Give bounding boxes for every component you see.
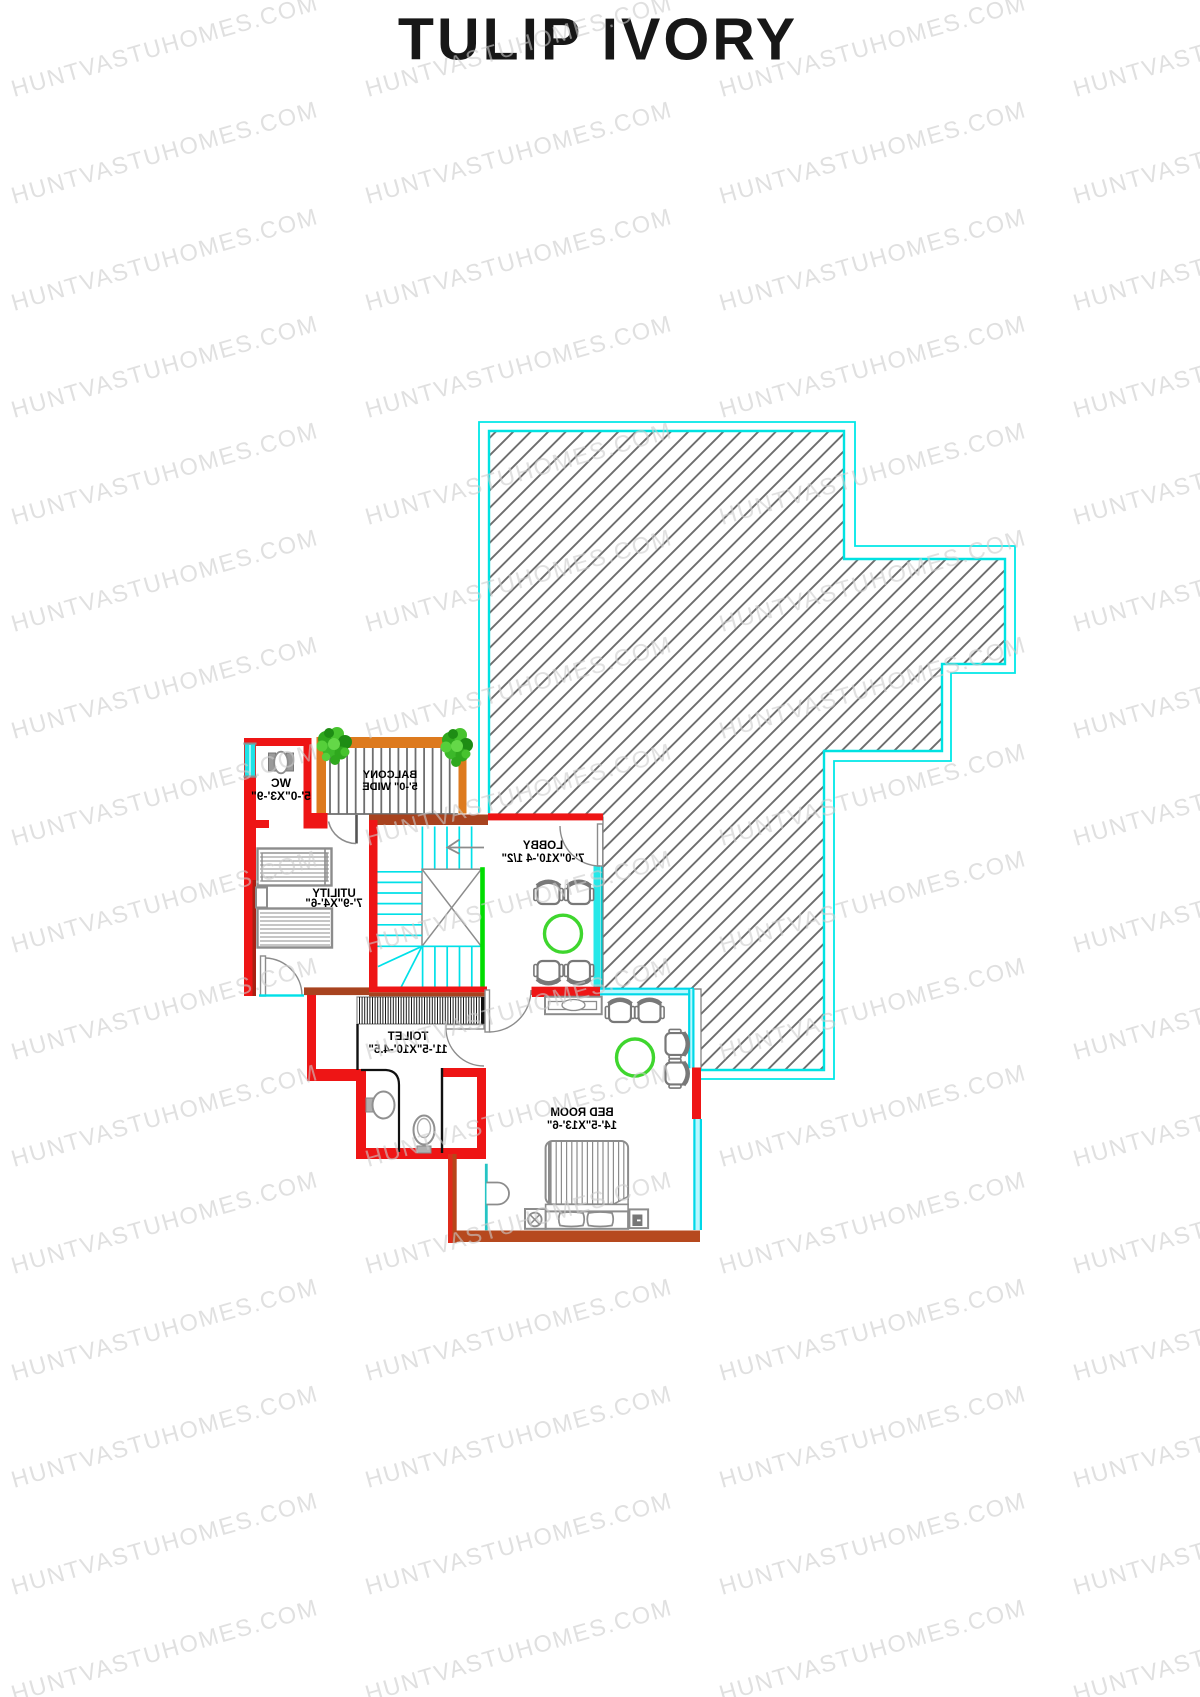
svg-text:LOBBY: LOBBY <box>523 840 564 852</box>
svg-text:HUNTVASTUHOMES.COM: HUNTVASTUHOMES.COM <box>8 96 321 209</box>
svg-text:HUNTVASTUHOMES.COM: HUNTVASTUHOMES.COM <box>8 1059 321 1172</box>
svg-text:HUNTVASTUHOMES.COM: HUNTVASTUHOMES.COM <box>8 1380 321 1493</box>
svg-text:HUNTVASTUHOMES.COM: HUNTVASTUHOMES.COM <box>362 1594 675 1697</box>
svg-text:HUNTVASTUHOMES.COM: HUNTVASTUHOMES.COM <box>1070 631 1200 744</box>
svg-text:HUNTVASTUHOMES.COM: HUNTVASTUHOMES.COM <box>716 1166 1029 1279</box>
svg-text:HUNTVASTUHOMES.COM: HUNTVASTUHOMES.COM <box>8 0 321 102</box>
svg-text:HUNTVASTUHOMES.COM: HUNTVASTUHOMES.COM <box>716 1594 1029 1697</box>
svg-text:HUNTVASTUHOMES.COM: HUNTVASTUHOMES.COM <box>8 524 321 637</box>
svg-text:HUNTVASTUHOMES.COM: HUNTVASTUHOMES.COM <box>8 1487 321 1600</box>
svg-text:WC: WC <box>271 776 291 790</box>
svg-text:HUNTVASTUHOMES.COM: HUNTVASTUHOMES.COM <box>1070 1594 1200 1697</box>
svg-text:HUNTVASTUHOMES.COM: HUNTVASTUHOMES.COM <box>8 952 321 1065</box>
svg-text:HUNTVASTUHOMES.COM: HUNTVASTUHOMES.COM <box>1070 738 1200 851</box>
svg-text:HUNTVASTUHOMES.COM: HUNTVASTUHOMES.COM <box>1070 952 1200 1065</box>
svg-text:HUNTVASTUHOMES.COM: HUNTVASTUHOMES.COM <box>362 310 675 423</box>
svg-text:HUNTVASTUHOMES.COM: HUNTVASTUHOMES.COM <box>716 96 1029 209</box>
svg-text:HUNTVASTUHOMES.COM: HUNTVASTUHOMES.COM <box>716 1273 1029 1386</box>
svg-text:HUNTVASTUHOMES.COM: HUNTVASTUHOMES.COM <box>8 631 321 744</box>
svg-text:7'-9"X4'-6": 7'-9"X4'-6" <box>305 898 362 910</box>
svg-text:5'-0" WIDE: 5'-0" WIDE <box>362 781 418 793</box>
svg-text:HUNTVASTUHOMES.COM: HUNTVASTUHOMES.COM <box>716 310 1029 423</box>
svg-text:HUNTVASTUHOMES.COM: HUNTVASTUHOMES.COM <box>716 1059 1029 1172</box>
svg-text:HUNTVASTUHOMES.COM: HUNTVASTUHOMES.COM <box>716 1487 1029 1600</box>
svg-text:HUNTVASTUHOMES.COM: HUNTVASTUHOMES.COM <box>1070 203 1200 316</box>
svg-text:HUNTVASTUHOMES.COM: HUNTVASTUHOMES.COM <box>8 203 321 316</box>
svg-text:HUNTVASTUHOMES.COM: HUNTVASTUHOMES.COM <box>1070 0 1200 102</box>
svg-text:HUNTVASTUHOMES.COM: HUNTVASTUHOMES.COM <box>362 1273 675 1386</box>
svg-text:HUNTVASTUHOMES.COM: HUNTVASTUHOMES.COM <box>1070 845 1200 958</box>
svg-text:HUNTVASTUHOMES.COM: HUNTVASTUHOMES.COM <box>1070 1166 1200 1279</box>
svg-text:HUNTVASTUHOMES.COM: HUNTVASTUHOMES.COM <box>8 1166 321 1279</box>
svg-text:HUNTVASTUHOMES.COM: HUNTVASTUHOMES.COM <box>1070 96 1200 209</box>
svg-text:5'-0"X3'-9": 5'-0"X3'-9" <box>251 789 311 803</box>
svg-text:HUNTVASTUHOMES.COM: HUNTVASTUHOMES.COM <box>716 1380 1029 1493</box>
svg-text:HUNTVASTUHOMES.COM: HUNTVASTUHOMES.COM <box>362 1487 675 1600</box>
svg-text:HUNTVASTUHOMES.COM: HUNTVASTUHOMES.COM <box>362 96 675 209</box>
svg-text:HUNTVASTUHOMES.COM: HUNTVASTUHOMES.COM <box>1070 1380 1200 1493</box>
svg-text:HUNTVASTUHOMES.COM: HUNTVASTUHOMES.COM <box>716 203 1029 316</box>
svg-text:HUNTVASTUHOMES.COM: HUNTVASTUHOMES.COM <box>1070 1487 1200 1600</box>
svg-text:HUNTVASTUHOMES.COM: HUNTVASTUHOMES.COM <box>8 1594 321 1697</box>
svg-text:14'-5"X13'-6": 14'-5"X13'-6" <box>547 1120 617 1132</box>
svg-text:HUNTVASTUHOMES.COM: HUNTVASTUHOMES.COM <box>8 417 321 530</box>
svg-text:7'-0"X10'-4 1/2": 7'-0"X10'-4 1/2" <box>502 853 585 865</box>
svg-text:HUNTVASTUHOMES.COM: HUNTVASTUHOMES.COM <box>8 1273 321 1386</box>
svg-text:HUNTVASTUHOMES.COM: HUNTVASTUHOMES.COM <box>362 203 675 316</box>
svg-text:BALCONY: BALCONY <box>362 769 417 781</box>
svg-text:HUNTVASTUHOMES.COM: HUNTVASTUHOMES.COM <box>1070 1273 1200 1386</box>
svg-text:HUNTVASTUHOMES.COM: HUNTVASTUHOMES.COM <box>362 1380 675 1493</box>
svg-text:HUNTVASTUHOMES.COM: HUNTVASTUHOMES.COM <box>1070 524 1200 637</box>
svg-text:HUNTVASTUHOMES.COM: HUNTVASTUHOMES.COM <box>8 310 321 423</box>
svg-text:HUNTVASTUHOMES.COM: HUNTVASTUHOMES.COM <box>1070 417 1200 530</box>
svg-text:HUNTVASTUHOMES.COM: HUNTVASTUHOMES.COM <box>1070 310 1200 423</box>
svg-text:HUNTVASTUHOMES.COM: HUNTVASTUHOMES.COM <box>1070 1059 1200 1172</box>
